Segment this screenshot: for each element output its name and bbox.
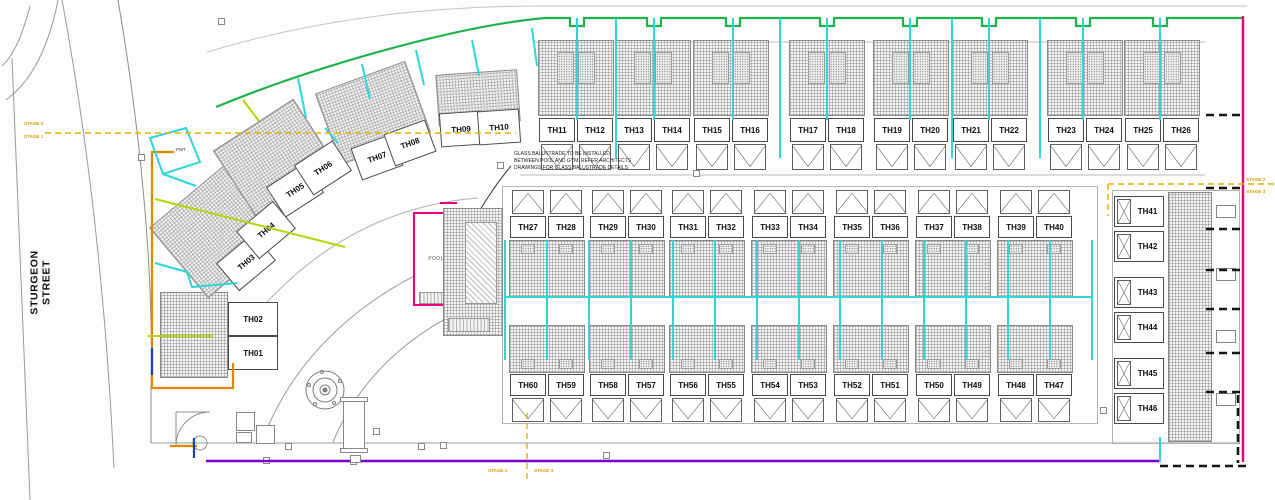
toprow-garage-th16 — [734, 144, 766, 170]
unit-label-th46: TH46 — [1132, 394, 1163, 422]
annotation-line-3: DRAWINGS FOR GLASS BALUSTRADE DETAILS — [514, 165, 686, 172]
mid-block-outline — [502, 186, 1098, 424]
toprow-yard — [873, 40, 949, 116]
toprow-garage-th26 — [1165, 144, 1197, 170]
survey-marker-box — [603, 452, 610, 459]
unit-label-th24: TH24 — [1086, 118, 1122, 142]
survey-marker-box — [440, 442, 447, 449]
rightcol-yard — [1168, 192, 1212, 442]
buildings-layer: TH11TH12TH13TH14TH15TH16TH17TH18TH19TH20… — [0, 0, 1275, 500]
stage-marker-right-top: STAGE 2 — [1246, 177, 1265, 182]
toprow-roof-stipple — [655, 52, 672, 84]
tank-cap-bottom — [340, 448, 368, 453]
store-box-1 — [236, 412, 255, 431]
toprow-roof-stipple — [712, 52, 729, 84]
toprow-yard — [1047, 40, 1123, 116]
garage-door-mark — [831, 145, 861, 169]
toprow-roof-stipple — [634, 52, 651, 84]
garage-door-mark — [1051, 145, 1081, 169]
stage-marker-left-bottom: STAGE 1 — [24, 134, 43, 139]
garage-door-mark — [994, 145, 1024, 169]
unit-label-th21: TH21 — [953, 118, 989, 142]
unit-label-th01: TH01 — [228, 336, 278, 370]
garage-door-mark — [1128, 145, 1158, 169]
garage-door-mark — [697, 145, 727, 169]
garage-door-mark — [793, 145, 823, 169]
toprow-roof-stipple — [1164, 52, 1181, 84]
unit-label-th45: TH45 — [1132, 359, 1163, 387]
survey-marker-box — [418, 443, 425, 450]
stage-marker-bottom-left: STAGE 1 — [488, 468, 507, 473]
rightcol-porch-box — [1216, 268, 1236, 281]
unit-label-th15: TH15 — [694, 118, 730, 142]
toprow-garage-th15 — [696, 144, 728, 170]
balustrade-annotation: GLASS BALUSTRADE TO BE INSTALLED BETWEEN… — [514, 151, 686, 171]
rightcol-garage-th41 — [1117, 199, 1131, 224]
unit-label-th11: TH11 — [539, 118, 575, 142]
toprow-garage-th22 — [993, 144, 1025, 170]
rightcol-garage-th44 — [1117, 315, 1131, 340]
toprow-roof-stipple — [578, 52, 595, 84]
toprow-yard — [693, 40, 769, 116]
stage-marker-bottom-right: STAGE 3 — [534, 468, 553, 473]
unit-label-th19: TH19 — [874, 118, 910, 142]
store-box-3 — [236, 432, 252, 443]
toprow-yard — [615, 40, 691, 116]
survey-marker-box — [693, 170, 700, 177]
garage-door-mark — [1118, 281, 1130, 304]
garage-door-mark — [1166, 145, 1196, 169]
toprow-yard — [1124, 40, 1200, 116]
rightcol-garage-th42 — [1117, 234, 1131, 259]
garage-door-mark — [1118, 200, 1130, 223]
stage-marker-right-bottom: STAGE 3 — [1246, 189, 1265, 194]
rightcol-porch-box — [1216, 330, 1236, 343]
toprow-garage-th24 — [1088, 144, 1120, 170]
unit-label-th02: TH02 — [228, 302, 278, 336]
unit-label-th42: TH42 — [1132, 232, 1163, 260]
tank-base-box — [350, 455, 361, 463]
rightcol-porch-box — [1216, 205, 1236, 218]
tank-cap-top — [340, 397, 368, 402]
tank-column — [343, 400, 365, 450]
unit-label-th12: TH12 — [577, 118, 613, 142]
unit-label-th44: TH44 — [1132, 313, 1163, 341]
toprow-roof-stipple — [557, 52, 574, 84]
garage-door-mark — [1118, 397, 1130, 420]
toprow-roof-stipple — [971, 52, 988, 84]
toprow-roof-stipple — [733, 52, 750, 84]
toprow-roof-stipple — [892, 52, 909, 84]
toprow-roof-stipple — [1066, 52, 1083, 84]
unit-label-th25: TH25 — [1125, 118, 1161, 142]
garage-door-mark — [1089, 145, 1119, 169]
garage-door-mark — [1118, 316, 1130, 339]
toprow-roof-stipple — [992, 52, 1009, 84]
survey-marker-box — [373, 428, 380, 435]
unit-label-th17: TH17 — [790, 118, 826, 142]
toprow-roof-stipple — [913, 52, 930, 84]
unit-label-th20: TH20 — [912, 118, 948, 142]
annotation-line-1: GLASS BALUSTRADE TO BE INSTALLED — [514, 151, 686, 158]
survey-marker-box — [1100, 407, 1107, 414]
unit-label-th22: TH22 — [991, 118, 1027, 142]
garage-door-mark — [956, 145, 986, 169]
toprow-garage-th23 — [1050, 144, 1082, 170]
garage-door-mark — [735, 145, 765, 169]
garage-door-mark — [1118, 362, 1130, 385]
unit-label-th43: TH43 — [1132, 278, 1163, 306]
unit-label-th41: TH41 — [1132, 197, 1163, 225]
toprow-garage-th21 — [955, 144, 987, 170]
curve-yard — [160, 292, 228, 378]
unit-label-th10: TH10 — [477, 109, 521, 146]
toprow-roof-stipple — [1143, 52, 1160, 84]
gym-entry-strip — [448, 318, 490, 332]
survey-marker-box — [285, 443, 292, 450]
garage-door-mark — [877, 145, 907, 169]
unit-label-th18: TH18 — [828, 118, 864, 142]
garage-door-mark — [915, 145, 945, 169]
toprow-yard — [952, 40, 1028, 116]
gym-roof-panel — [465, 222, 497, 304]
unit-label-th14: TH14 — [654, 118, 690, 142]
toprow-roof-stipple — [1087, 52, 1104, 84]
survey-marker-box — [263, 457, 270, 464]
toprow-roof-stipple — [829, 52, 846, 84]
rightcol-garage-th45 — [1117, 361, 1131, 386]
garage-door-mark — [1118, 235, 1130, 258]
unit-label-th16: TH16 — [732, 118, 768, 142]
toprow-garage-th25 — [1127, 144, 1159, 170]
rightcol-garage-th46 — [1117, 396, 1131, 421]
stage-marker-left-top: STAGE 2 — [24, 121, 43, 126]
unit-label-th26: TH26 — [1163, 118, 1199, 142]
toprow-yard — [538, 40, 614, 116]
toprow-roof-stipple — [808, 52, 825, 84]
toprow-garage-th20 — [914, 144, 946, 170]
rightcol-porch-box — [1216, 393, 1236, 406]
annotation-line-2: BETWEEN POOL AND GYM. REFER ARCHITECTS — [514, 158, 686, 165]
site-plan-drawing: TH11TH12TH13TH14TH15TH16TH17TH18TH19TH20… — [0, 0, 1275, 500]
toprow-garage-th19 — [876, 144, 908, 170]
annotation-leader-box — [497, 162, 504, 169]
unit-label-th23: TH23 — [1048, 118, 1084, 142]
pmt-label: PMT — [176, 147, 186, 152]
survey-marker-box — [218, 18, 225, 25]
toprow-garage-th17 — [792, 144, 824, 170]
street-name-label: STURGEON STREET — [29, 228, 42, 338]
rightcol-garage-th43 — [1117, 280, 1131, 305]
toprow-yard — [789, 40, 865, 116]
store-box-2 — [256, 425, 275, 444]
unit-label-th13: TH13 — [616, 118, 652, 142]
toprow-garage-th18 — [830, 144, 862, 170]
survey-marker-box — [138, 154, 145, 161]
